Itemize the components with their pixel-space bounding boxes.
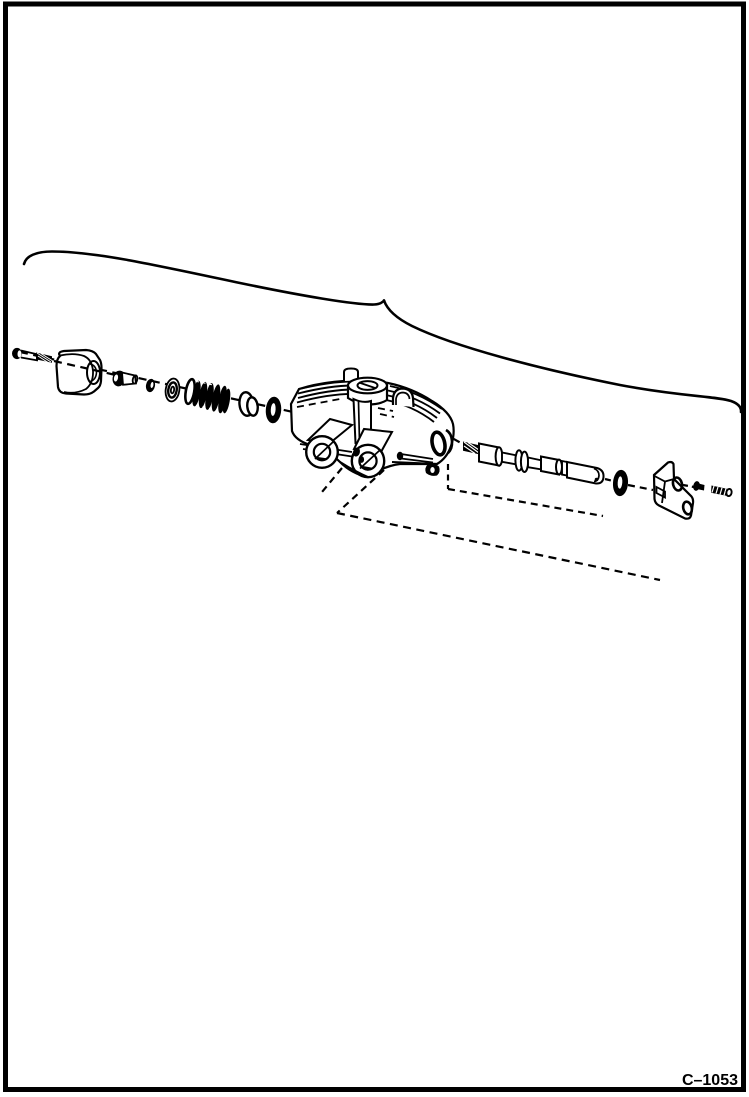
svg-text:C–1053: C–1053: [682, 1072, 738, 1089]
